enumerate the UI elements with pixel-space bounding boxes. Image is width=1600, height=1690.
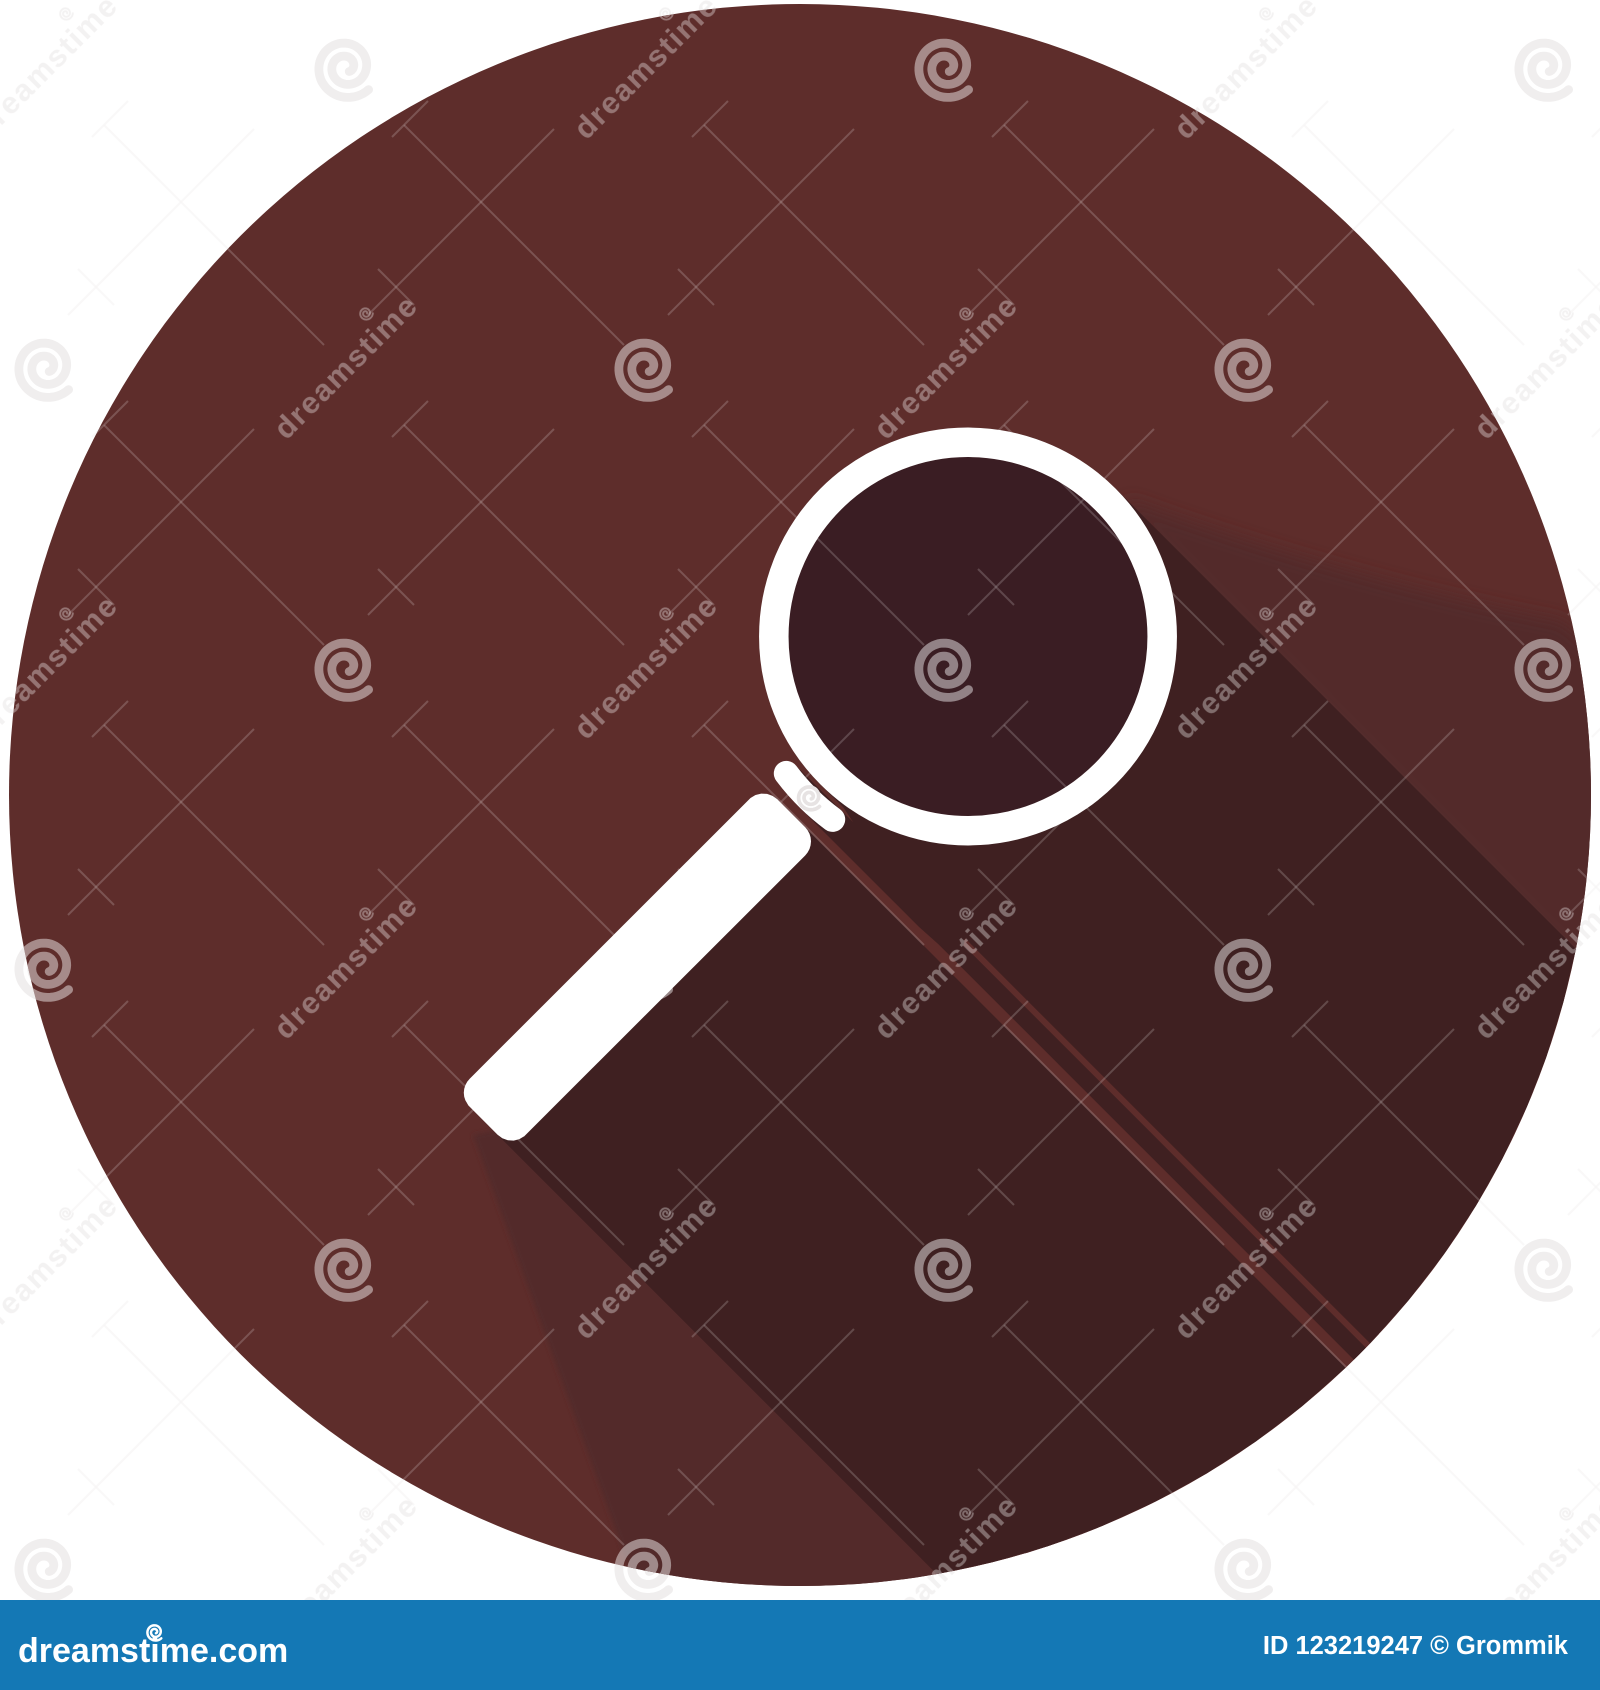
svg-text:ID 123219247 © Grommik: ID 123219247 © Grommik: [1263, 1632, 1569, 1660]
svg-text:dreamstime.com: dreamstime.com: [18, 1632, 288, 1670]
